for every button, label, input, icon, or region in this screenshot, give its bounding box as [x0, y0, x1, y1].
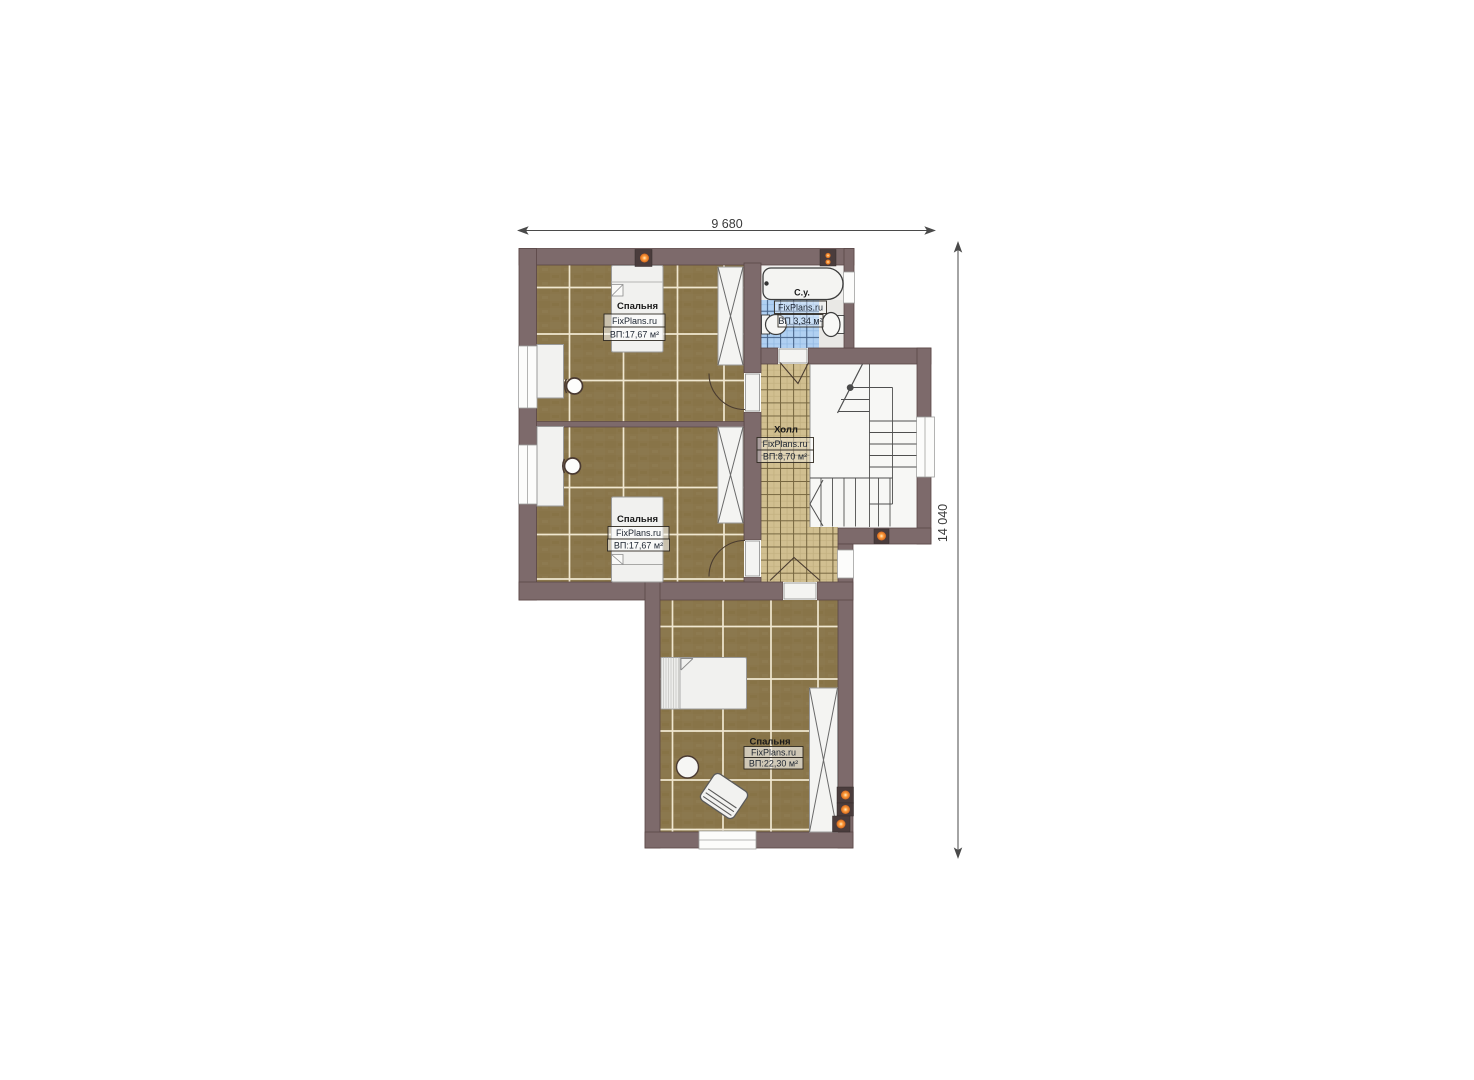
svg-text:FixPlans.ru: FixPlans.ru [762, 439, 807, 449]
svg-text:FixPlans.ru: FixPlans.ru [778, 303, 823, 313]
svg-text:ВП:17,67 м²: ВП:17,67 м² [610, 330, 659, 340]
svg-text:ВП 3,34 м²: ВП 3,34 м² [778, 316, 822, 326]
svg-text:ВП:22,30 м²: ВП:22,30 м² [749, 759, 798, 769]
svg-text:Спальня: Спальня [617, 514, 658, 525]
svg-text:С.у.: С.у. [794, 288, 810, 298]
svg-text:Холл: Холл [774, 425, 798, 436]
svg-text:ВП:8,70 м²: ВП:8,70 м² [763, 452, 807, 462]
svg-text:Спальня: Спальня [617, 301, 658, 312]
svg-text:ВП:17,67 м²: ВП:17,67 м² [614, 541, 663, 551]
svg-text:FixPlans.ru: FixPlans.ru [612, 316, 657, 326]
svg-text:FixPlans.ru: FixPlans.ru [616, 528, 661, 538]
svg-text:14 040: 14 040 [936, 504, 950, 542]
svg-text:Спальня: Спальня [749, 737, 790, 748]
svg-text:9 680: 9 680 [711, 217, 742, 231]
svg-text:FixPlans.ru: FixPlans.ru [751, 748, 796, 758]
